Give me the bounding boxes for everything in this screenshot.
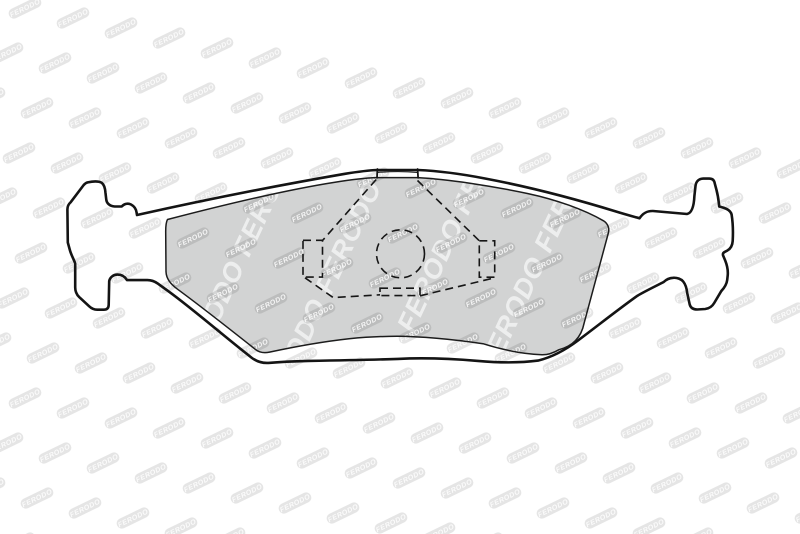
watermark-chip: FERODO xyxy=(793,501,800,526)
brake-pad-technical-drawing: FERODOFERODOFERODOFERODOFERODOFERODOFERO… xyxy=(0,0,800,534)
watermark-chip: FERODO xyxy=(0,231,1,256)
watermark-chip: FERODO xyxy=(517,151,553,176)
watermark-big-text: FERODO xyxy=(281,450,360,534)
watermark-chip: FERODO xyxy=(217,381,253,406)
watermark-chip: FERODO xyxy=(229,91,265,116)
watermark-chip: FERODO xyxy=(85,451,121,476)
watermark-big-text: FERODO xyxy=(583,16,662,139)
watermark-chip: FERODO xyxy=(325,111,361,136)
watermark-chip: FERODO xyxy=(727,146,763,171)
watermark-chip-text: FERODO xyxy=(633,518,666,534)
watermark-chip: FERODO xyxy=(139,316,175,341)
watermark-chip: FERODO xyxy=(0,431,25,456)
watermark-chip: FERODO xyxy=(763,446,799,471)
watermark-chip: FERODO xyxy=(0,186,19,211)
watermark-chip: FERODO xyxy=(211,136,247,161)
watermark-chip: FERODO xyxy=(469,531,505,534)
watermark-chip: FERODO xyxy=(199,426,235,451)
watermark-big-text: FERODO xyxy=(664,484,743,534)
watermark-chip: FERODO xyxy=(67,496,103,521)
watermark-chip: FERODO xyxy=(43,296,79,321)
watermark-chip: FERODO xyxy=(7,386,43,411)
product-image: FERODOFERODOFERODOFERODOFERODOFERODOFERO… xyxy=(0,0,800,534)
watermark-big-text: FERODO xyxy=(501,0,580,101)
watermark-chip: FERODO xyxy=(613,171,649,196)
watermark-chip: FERODO xyxy=(181,471,217,496)
watermark-chip: FERODO xyxy=(649,471,685,496)
watermark-chip: FERODO xyxy=(745,491,781,516)
watermark-chip: FERODO xyxy=(421,131,457,156)
watermark-chip: FERODO xyxy=(25,341,61,366)
watermark-chip: FERODO xyxy=(535,106,571,131)
watermark-big-text: FERODO xyxy=(665,54,744,177)
watermark-chip: FERODO xyxy=(313,401,349,426)
watermark-big-text: FERODO xyxy=(337,0,416,25)
watermark-chip: FERODO xyxy=(631,126,667,151)
watermark-big-text: FERODO xyxy=(719,366,798,489)
watermark-chip: FERODO xyxy=(103,406,139,431)
watermark-chip: FERODO xyxy=(631,516,667,534)
watermark-chip-text: FERODO xyxy=(165,518,198,534)
watermark-big-text: FERODO xyxy=(720,0,799,59)
watermark-chip-background xyxy=(0,231,1,256)
watermark-big-text: FERODO xyxy=(638,0,717,21)
watermark-big-text: FERODO xyxy=(419,0,498,63)
watermark-chip: FERODO xyxy=(163,516,199,534)
watermark-chip: FERODO xyxy=(343,66,379,91)
watermark-chip: FERODO xyxy=(121,361,157,386)
watermark-chip: FERODO xyxy=(0,476,7,501)
watermark-chip: FERODO xyxy=(787,256,800,281)
watermark-chip: FERODO xyxy=(439,86,475,111)
watermark-chip: FERODO xyxy=(97,161,133,186)
watermark-big-text: FERODO xyxy=(364,58,443,181)
watermark-big-text: FERODO xyxy=(0,24,60,147)
